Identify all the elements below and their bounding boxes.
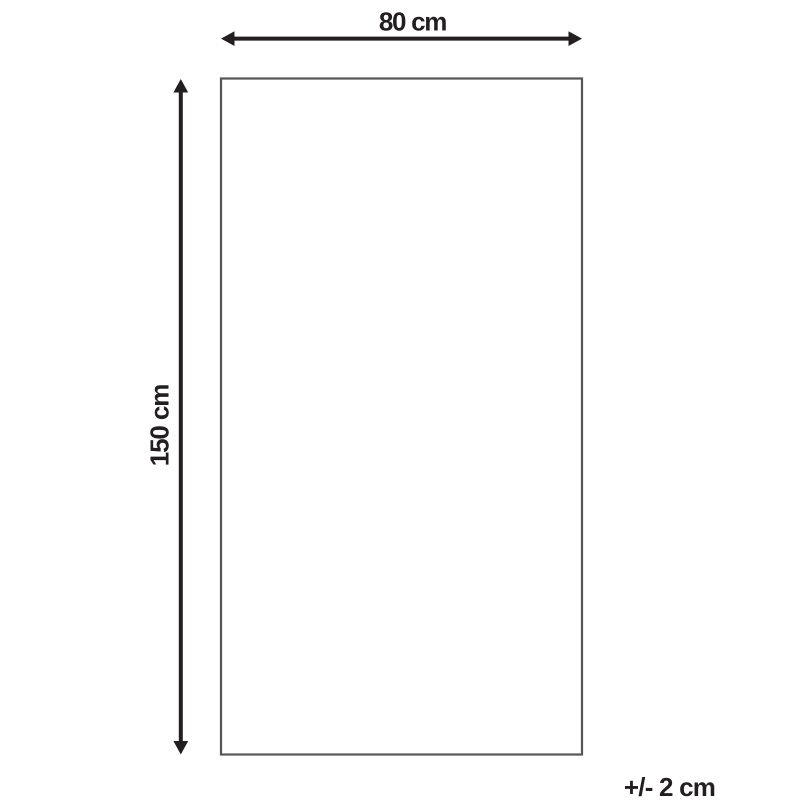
svg-text:80 cm: 80 cm [379, 7, 446, 37]
svg-text:150 cm: 150 cm [145, 385, 175, 467]
svg-text:+/- 2 cm: +/- 2 cm [624, 772, 715, 800]
